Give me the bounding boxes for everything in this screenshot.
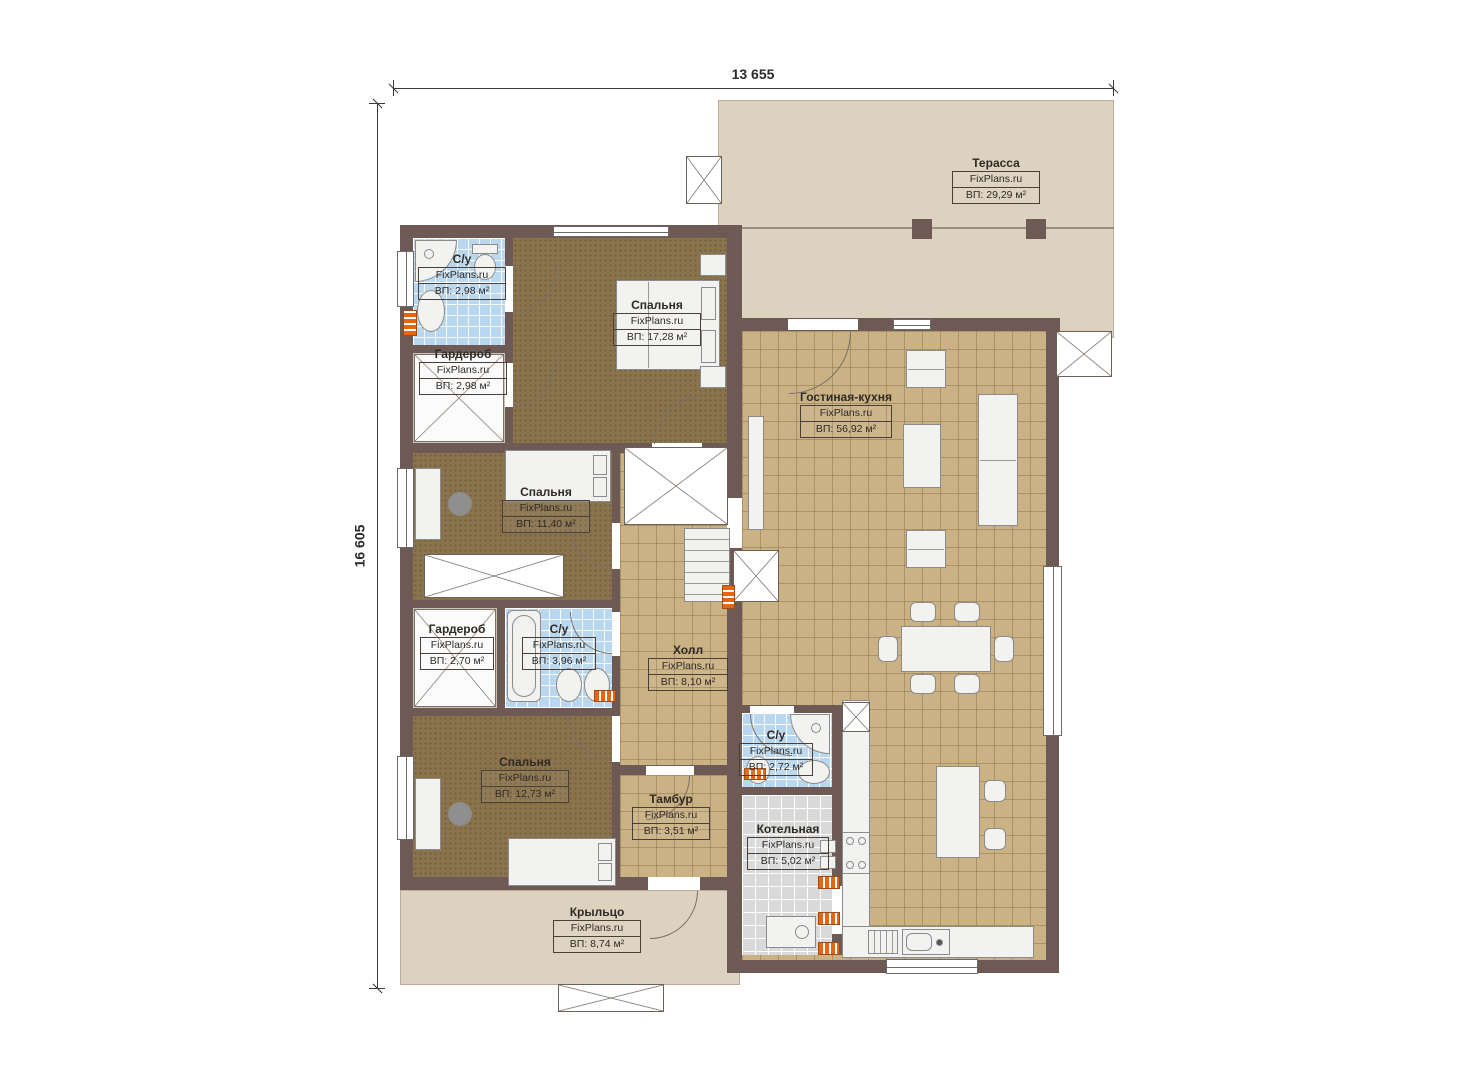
room-label-wc-top: С/у FixPlans.ru ВП: 2,98 м² <box>418 252 506 300</box>
brand: FixPlans.ru <box>953 172 1039 187</box>
room-name: Спальня <box>481 755 569 769</box>
pillow <box>598 843 612 861</box>
wall-wcmid-south <box>400 708 612 716</box>
room-area: ВП: 3,51 м² <box>633 823 709 839</box>
room-name: Крыльцо <box>553 905 641 919</box>
bar-stool <box>984 780 1006 802</box>
sink <box>556 668 582 702</box>
radiator <box>818 876 840 889</box>
dimension-height-label: 16 605 <box>351 525 367 568</box>
room-name: Гардероб <box>420 622 494 636</box>
window <box>886 959 978 974</box>
brand: FixPlans.ru <box>420 363 506 378</box>
dining-chair <box>910 674 936 694</box>
brand: FixPlans.ru <box>523 638 595 653</box>
nightstand <box>700 254 726 276</box>
dining-table <box>901 626 991 672</box>
bed <box>508 838 616 886</box>
pillow <box>598 863 612 881</box>
kitchen-counter-west <box>842 700 870 958</box>
burner <box>846 837 854 845</box>
armchair-line <box>908 549 944 550</box>
radiator <box>722 585 735 609</box>
terrace-column <box>1026 219 1046 239</box>
floor-plan: Терасса FixPlans.ru ВП: 29,29 м² С/у Fix… <box>0 0 1474 1080</box>
room-name: С/у <box>739 728 813 742</box>
kitchen-island <box>936 766 980 858</box>
window <box>397 468 414 548</box>
boiler-door-gap <box>832 886 842 934</box>
room-name: Гардероб <box>419 347 507 361</box>
window <box>397 756 414 840</box>
wc-top-door-gap <box>505 266 513 312</box>
room-label-bedroom-top: Спальня FixPlans.ru ВП: 17,28 м² <box>613 298 701 346</box>
room-label-tambur: Тамбур FixPlans.ru ВП: 3,51 м² <box>632 792 710 840</box>
dimension-width-label: 13 655 <box>732 66 775 82</box>
wall-wcright-south <box>742 787 832 795</box>
room-area: ВП: 11,40 м² <box>503 516 589 532</box>
bedroom-mid-closet <box>424 554 564 598</box>
drainboard <box>868 930 898 954</box>
pillow <box>701 330 716 363</box>
dining-chair <box>994 636 1014 662</box>
wc-mid-door-gap <box>612 612 620 656</box>
fireplace-shaft <box>733 550 779 602</box>
dimension-ext <box>369 103 385 104</box>
room-area: ВП: 17,28 м² <box>614 329 700 345</box>
wc-right-door-gap <box>750 706 794 714</box>
brand: FixPlans.ru <box>740 744 812 759</box>
hall-closet <box>624 447 728 525</box>
dimension-ext <box>393 80 394 96</box>
dimension-line-left <box>377 103 378 988</box>
room-name: Котельная <box>747 822 829 836</box>
bar-stool <box>984 828 1006 850</box>
room-label-hall: Холл FixPlans.ru ВП: 8,10 м² <box>648 643 728 691</box>
washer-door <box>795 925 809 939</box>
brand: FixPlans.ru <box>503 501 589 516</box>
brand: FixPlans.ru <box>419 268 505 283</box>
terrace-column <box>912 219 932 239</box>
sink-basin <box>906 933 932 951</box>
room-area: ВП: 56,92 м² <box>801 421 891 437</box>
coffee-table <box>903 424 941 488</box>
burner <box>846 861 854 869</box>
room-area: ВП: 29,29 м² <box>953 187 1039 203</box>
radiator <box>818 912 840 925</box>
entry-door-gap <box>648 877 700 890</box>
dining-chair <box>878 636 898 662</box>
wall-wardrobe-wc-sep <box>497 600 505 708</box>
faucet <box>936 939 943 946</box>
terrace-vent-box <box>1056 331 1112 377</box>
brand: FixPlans.ru <box>633 808 709 823</box>
room-label-terrace: Терасса FixPlans.ru ВП: 29,29 м² <box>952 156 1040 204</box>
room-area: ВП: 12,73 м² <box>482 786 568 802</box>
room-label-boiler: Котельная FixPlans.ru ВП: 5,02 м² <box>747 822 829 870</box>
room-name: Тамбур <box>632 792 710 806</box>
dimension-ext <box>1113 80 1114 96</box>
desk-chair <box>448 802 472 826</box>
radiator <box>594 690 616 702</box>
room-name: С/у <box>522 622 596 636</box>
brand: FixPlans.ru <box>614 314 700 329</box>
dimension-line-top <box>393 88 1113 89</box>
brand: FixPlans.ru <box>554 921 640 936</box>
wall-wc-top-east <box>505 225 513 443</box>
armchair-line <box>908 369 944 370</box>
dining-chair <box>954 602 980 622</box>
room-area: ВП: 2,98 м² <box>420 378 506 394</box>
room-label-porch: Крыльцо FixPlans.ru ВП: 8,74 м² <box>553 905 641 953</box>
room-area: ВП: 2,70 м² <box>421 653 493 669</box>
dimension-ext <box>369 988 385 989</box>
room-label-wc-right: С/у FixPlans.ru ВП: 2,72 м² <box>739 728 813 776</box>
armchair <box>906 350 946 388</box>
room-area: ВП: 5,02 м² <box>748 853 828 869</box>
pillow <box>593 477 607 497</box>
desk-chair <box>448 492 472 516</box>
window <box>553 226 669 237</box>
burner <box>858 861 866 869</box>
terrace-door-gap <box>788 319 858 330</box>
room-name: Спальня <box>502 485 590 499</box>
kitchen-sink <box>902 929 950 955</box>
kitchen-sink-small <box>842 702 870 732</box>
room-area: ВП: 2,98 м² <box>419 283 505 299</box>
brand: FixPlans.ru <box>801 406 891 421</box>
room-name: Спальня <box>613 298 701 312</box>
room-name: Терасса <box>952 156 1040 170</box>
dining-chair <box>954 674 980 694</box>
sofa-cushion-line <box>980 460 1016 461</box>
stove <box>842 832 870 874</box>
window <box>893 319 931 330</box>
room-name: Гостиная-кухня <box>800 390 892 404</box>
window <box>1043 566 1062 736</box>
brand: FixPlans.ru <box>748 838 828 853</box>
burner <box>858 837 866 845</box>
wall-hall-west <box>612 443 620 877</box>
brand: FixPlans.ru <box>649 659 727 674</box>
chimney-box <box>686 156 722 204</box>
window <box>397 251 414 307</box>
nightstand <box>700 366 726 388</box>
desk <box>415 468 441 540</box>
pillow <box>701 287 716 320</box>
bedroom-mid-door-gap <box>612 523 620 569</box>
room-area: ВП: 3,96 м² <box>523 653 595 669</box>
room-label-wardrobe-top: Гардероб FixPlans.ru ВП: 2,98 м² <box>419 347 507 395</box>
room-label-wardrobe-mid: Гардероб FixPlans.ru ВП: 2,70 м² <box>420 622 494 670</box>
entry-steps <box>558 984 664 1012</box>
tv-console <box>748 416 764 530</box>
washer-boiler-unit <box>766 916 816 948</box>
tambur-door-gap <box>646 766 694 775</box>
desk <box>415 778 441 850</box>
room-label-living-kitchen: Гостиная-кухня FixPlans.ru ВП: 56,92 м² <box>800 390 892 438</box>
room-label-wc-mid: С/у FixPlans.ru ВП: 3,96 м² <box>522 622 596 670</box>
dining-chair <box>910 602 936 622</box>
radiator <box>403 310 417 336</box>
wall-bedmid-south <box>400 600 612 608</box>
brand: FixPlans.ru <box>421 638 493 653</box>
radiator <box>818 942 840 955</box>
room-name: Холл <box>648 643 728 657</box>
room-label-bedroom-bottom: Спальня FixPlans.ru ВП: 12,73 м² <box>481 755 569 803</box>
bedroom-bottom-door-gap <box>612 716 620 762</box>
pillow <box>593 455 607 475</box>
sofa <box>978 394 1018 526</box>
room-label-bedroom-mid: Спальня FixPlans.ru ВП: 11,40 м² <box>502 485 590 533</box>
room-name: С/у <box>418 252 506 266</box>
room-area: ВП: 8,74 м² <box>554 936 640 952</box>
room-area: ВП: 8,10 м² <box>649 674 727 690</box>
brand: FixPlans.ru <box>482 771 568 786</box>
room-area: ВП: 2,72 м² <box>740 759 812 775</box>
armchair <box>906 530 946 568</box>
